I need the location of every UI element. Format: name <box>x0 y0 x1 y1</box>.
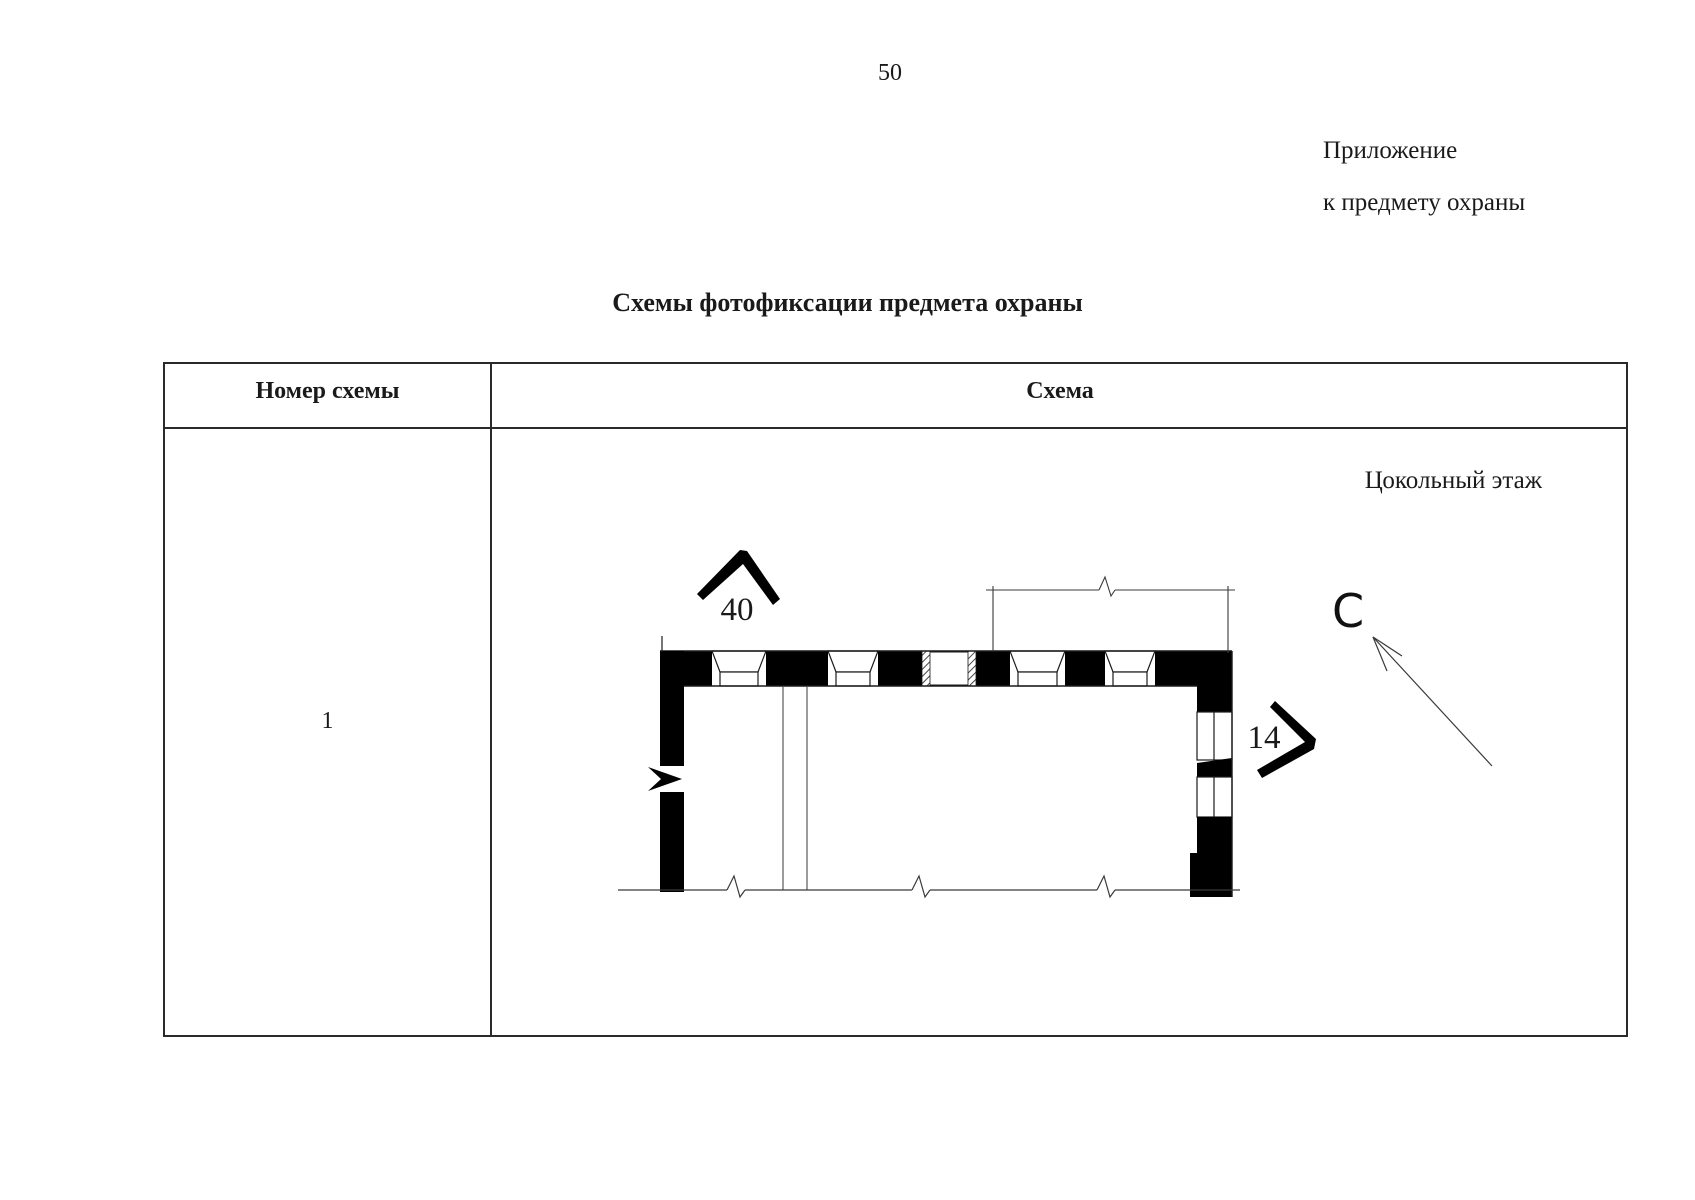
wall-segment <box>1197 686 1232 712</box>
table-header-divider <box>165 427 1626 429</box>
partition-lines <box>783 686 807 890</box>
table-column-divider <box>490 364 492 1035</box>
dimension-line <box>986 577 1235 653</box>
annotation-line-1: Приложение <box>1323 137 1457 165</box>
camera-40-label: 40 <box>721 592 754 628</box>
window-opening <box>1197 777 1232 817</box>
wall-segment <box>1065 651 1105 686</box>
camera-14-marker: 14 <box>1248 701 1317 778</box>
right-wall <box>1190 651 1232 897</box>
column-header-scheme: Схема <box>492 378 1628 405</box>
wall-segment <box>766 651 828 686</box>
wall-segment <box>1197 817 1232 855</box>
bottom-break-line <box>618 876 1240 897</box>
floor-label: Цокольный этаж <box>492 467 1542 495</box>
annotation-line-2: к предмету охраны <box>1323 189 1525 217</box>
window-opening <box>1197 712 1232 760</box>
wall-segment <box>976 651 1010 686</box>
document-page: 50 Приложение к предмету охраны Схемы фо… <box>0 0 1695 1200</box>
page-title: Схемы фотофиксации предмета охраны <box>0 288 1695 318</box>
column-header-scheme-number: Номер схемы <box>165 378 490 405</box>
break-zigzag-icon <box>1099 577 1115 596</box>
north-indicator: С <box>1332 584 1492 766</box>
top-wall <box>660 651 1232 686</box>
left-wall <box>648 636 686 892</box>
wall-segment <box>1155 651 1232 686</box>
wall-segment <box>878 651 922 686</box>
break-zigzag-icon <box>727 876 745 897</box>
scheme-number-cell: 1 <box>165 708 490 735</box>
north-arrow-icon <box>1373 637 1492 766</box>
camera-40-marker: 40 <box>697 550 780 628</box>
north-label: С <box>1332 584 1364 638</box>
hatched-pier <box>968 651 976 686</box>
break-zigzag-icon <box>1097 876 1115 897</box>
wall-pier <box>1197 758 1232 777</box>
hatched-pier <box>922 651 930 686</box>
break-zigzag-icon <box>912 876 930 897</box>
camera-14-label: 14 <box>1248 720 1281 756</box>
page-number: 50 <box>0 60 1695 87</box>
floor-plan: 40 14 С <box>560 520 1540 920</box>
